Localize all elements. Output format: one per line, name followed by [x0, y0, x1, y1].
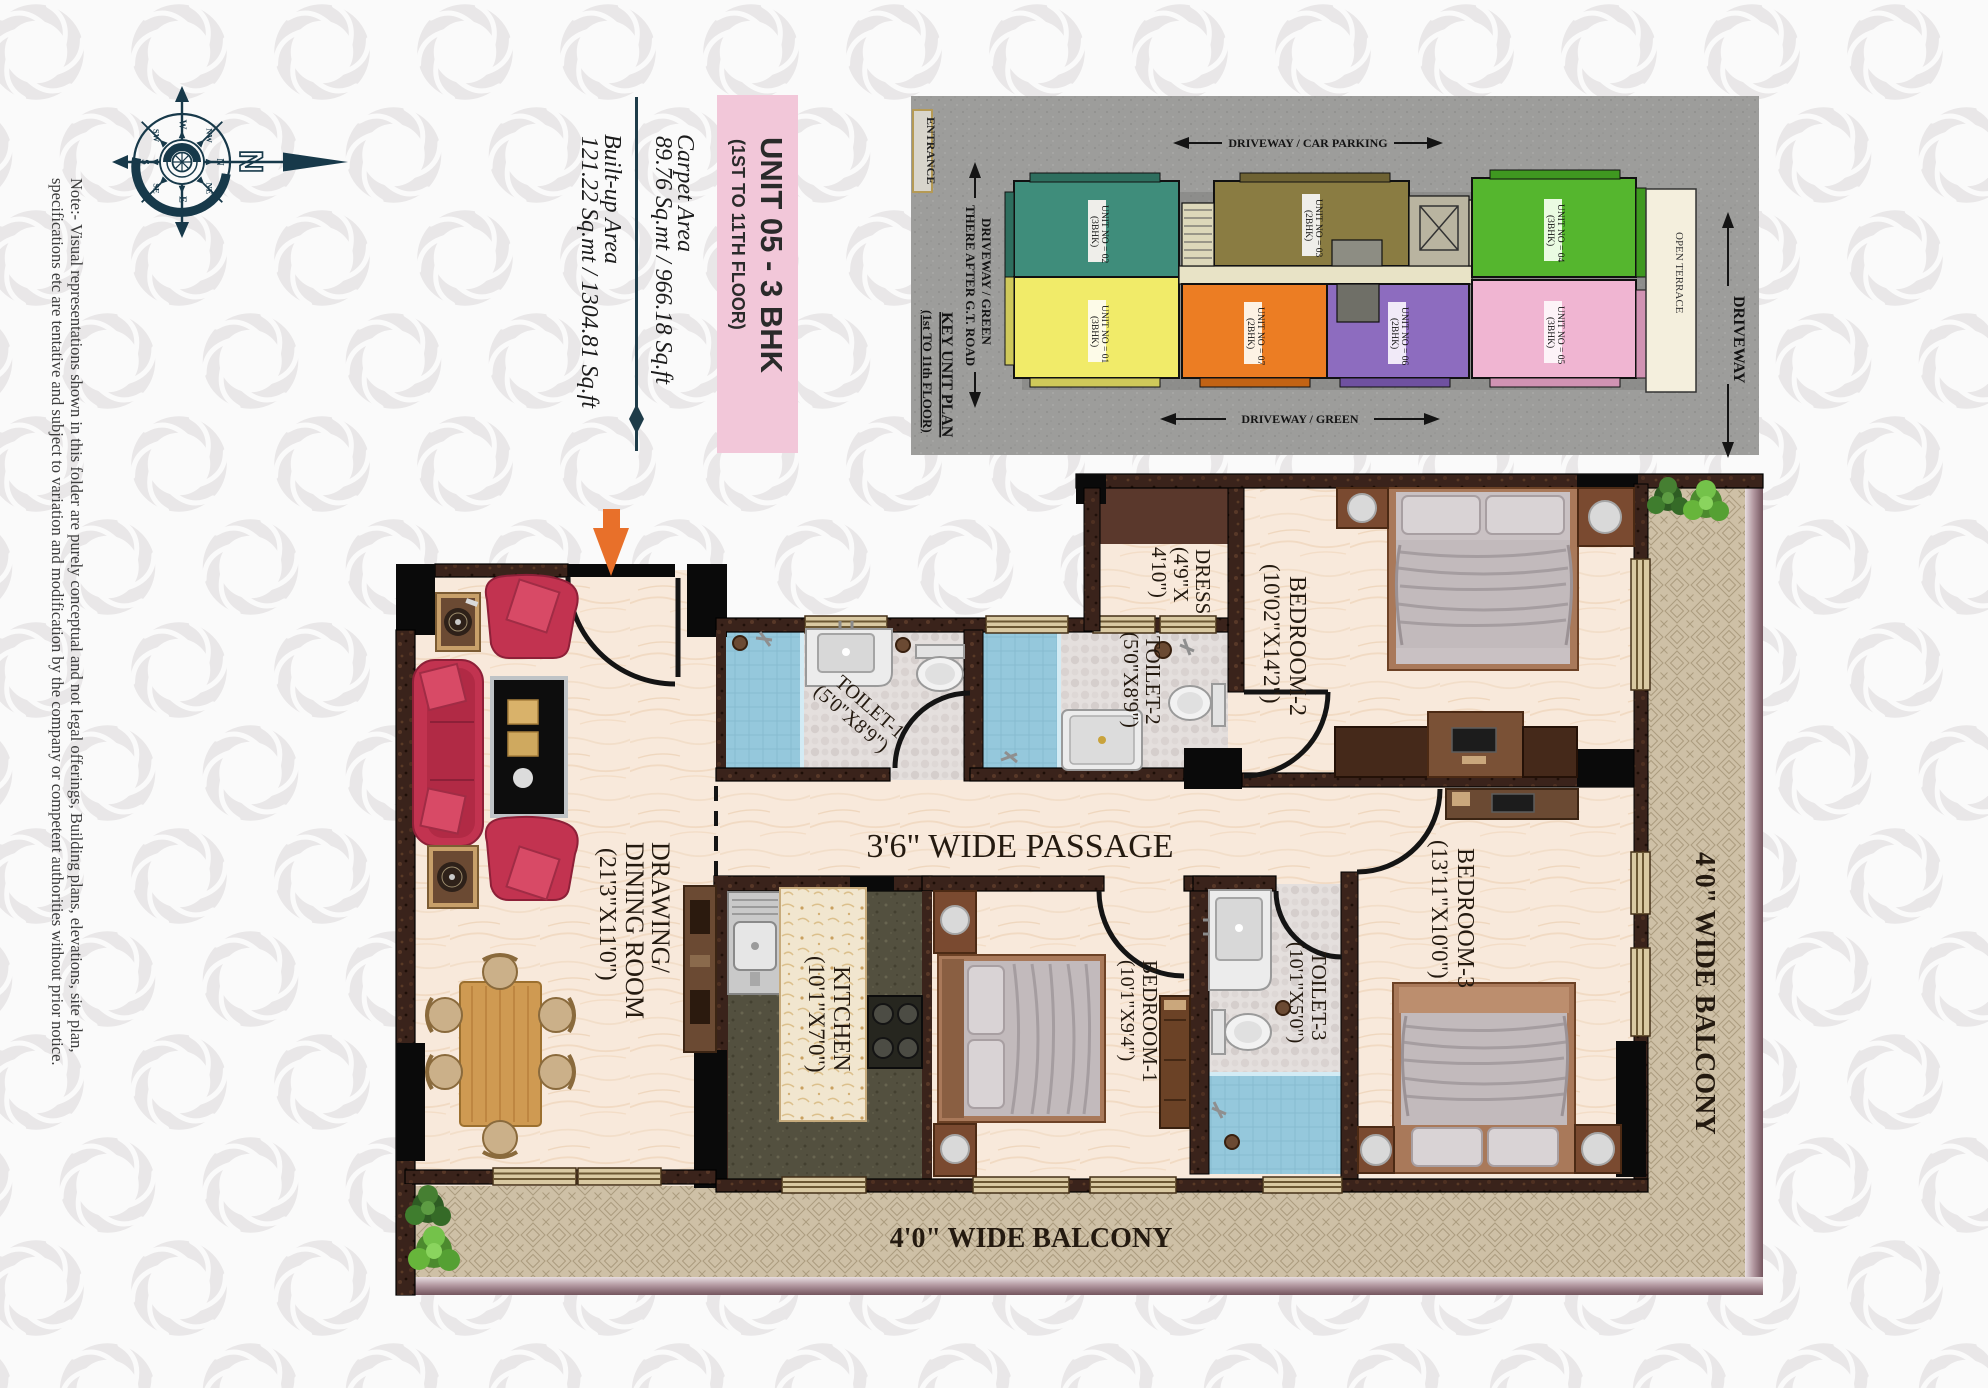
- svg-text:DRIVEWAY / GREEN: DRIVEWAY / GREEN: [979, 218, 994, 346]
- svg-text:Note:- Visual representations: Note:- Visual representations shown in t…: [67, 178, 86, 1053]
- svg-text:NE: NE: [205, 183, 215, 195]
- svg-text:(10'1"X7'0"): (10'1"X7'0"): [804, 956, 829, 1073]
- svg-text:4'0" WIDE BALCONY: 4'0" WIDE BALCONY: [890, 1223, 1173, 1254]
- svg-text:DRIVEWAY / GREEN: DRIVEWAY / GREEN: [1241, 412, 1358, 426]
- svg-text:3'6" WIDE PASSAGE: 3'6" WIDE PASSAGE: [866, 828, 1173, 865]
- svg-text:UNIT 05 - 3 BHK: UNIT 05 - 3 BHK: [754, 137, 789, 374]
- svg-text:DRAWING/: DRAWING/: [646, 842, 675, 974]
- svg-text:BEDROOM-3: BEDROOM-3: [1452, 848, 1478, 988]
- svg-text:(5'0"X8'9"): (5'0"X8'9"): [1119, 632, 1143, 728]
- svg-text:89.76 Sq.mt / 966.18 Sq.ft: 89.76 Sq.mt / 966.18 Sq.ft: [650, 136, 676, 385]
- svg-text:ENTRANCE: ENTRANCE: [924, 117, 938, 184]
- svg-text:KEY UNIT PLAN: KEY UNIT PLAN: [938, 312, 955, 438]
- svg-text:DRIVEWAY: DRIVEWAY: [1730, 296, 1747, 384]
- svg-text:DRIVEWAY / CAR PARKING: DRIVEWAY / CAR PARKING: [1228, 136, 1387, 150]
- svg-text:S: S: [139, 159, 150, 165]
- svg-text:(10'1"X9'4"): (10'1"X9'4"): [1116, 960, 1138, 1061]
- svg-text:KITCHEN: KITCHEN: [828, 966, 854, 1071]
- svg-text:UNIT NO = 03: UNIT NO = 03: [1313, 199, 1323, 257]
- svg-text:UNIT NO = 07: UNIT NO = 07: [1255, 307, 1265, 365]
- svg-text:121.22 Sq.mt / 1304.81 Sq.ft: 121.22 Sq.mt / 1304.81 Sq.ft: [576, 136, 602, 409]
- svg-text:(2BHK): (2BHK): [1389, 318, 1400, 349]
- svg-text:(3BHK): (3BHK): [1545, 317, 1556, 348]
- svg-text:THERE AFTER G.T. ROAD: THERE AFTER G.T. ROAD: [963, 205, 978, 366]
- svg-text:N: N: [233, 150, 269, 173]
- svg-text:NW: NW: [205, 128, 215, 143]
- svg-text:OPEN TERRACE: OPEN TERRACE: [1673, 232, 1685, 314]
- svg-text:(4'9"X: (4'9"X: [1169, 547, 1193, 603]
- svg-text:(1st TO 11th FLOOR): (1st TO 11th FLOOR): [920, 310, 935, 433]
- svg-text:specifications etc are tentati: specifications etc are tentative and sub…: [48, 178, 67, 1066]
- svg-text:BEDROOM-1: BEDROOM-1: [1138, 960, 1162, 1083]
- svg-text:UNIT NO = 02: UNIT NO = 02: [1099, 205, 1109, 263]
- svg-text:(3BHK): (3BHK): [1089, 316, 1100, 347]
- svg-text:(21'3"X11'0"): (21'3"X11'0"): [594, 848, 620, 981]
- svg-text:(13'11"X10'0"): (13'11"X10'0"): [1427, 840, 1452, 979]
- svg-text:TOILET-3: TOILET-3: [1307, 952, 1331, 1041]
- svg-text:UNIT NO = 04: UNIT NO = 04: [1555, 204, 1565, 262]
- svg-text:(1ST TO 11TH FLOOR): (1ST TO 11TH FLOOR): [728, 139, 748, 330]
- svg-text:N: N: [214, 158, 225, 166]
- svg-text:(10'1"X5'0"): (10'1"X5'0"): [1285, 942, 1307, 1043]
- svg-text:TOILET-2: TOILET-2: [1141, 636, 1165, 725]
- svg-text:4'0" WIDE BALCONY: 4'0" WIDE BALCONY: [1689, 852, 1720, 1135]
- svg-text:E: E: [177, 196, 188, 203]
- svg-text:UNIT NO = 01: UNIT NO = 01: [1099, 305, 1109, 363]
- svg-text:(2BHK): (2BHK): [1245, 318, 1256, 349]
- svg-text:DINING ROOM: DINING ROOM: [620, 842, 649, 1019]
- svg-text:SW: SW: [152, 129, 162, 143]
- svg-text:4'10"): 4'10"): [1147, 547, 1171, 598]
- svg-text:(2BHK): (2BHK): [1303, 210, 1314, 241]
- svg-text:UNIT NO = 05: UNIT NO = 05: [1555, 306, 1565, 364]
- svg-text:SE: SE: [152, 183, 162, 194]
- svg-text:W: W: [177, 120, 188, 130]
- svg-text:(3BHK): (3BHK): [1545, 215, 1556, 246]
- svg-text:BEDROOM-2: BEDROOM-2: [1284, 576, 1310, 716]
- svg-text:(3BHK): (3BHK): [1089, 216, 1100, 247]
- svg-text:(10'02"X14'2"): (10'02"X14'2"): [1259, 564, 1284, 704]
- svg-text:DRESS: DRESS: [1191, 549, 1215, 614]
- svg-text:UNIT NO = 06: UNIT NO = 06: [1399, 307, 1409, 365]
